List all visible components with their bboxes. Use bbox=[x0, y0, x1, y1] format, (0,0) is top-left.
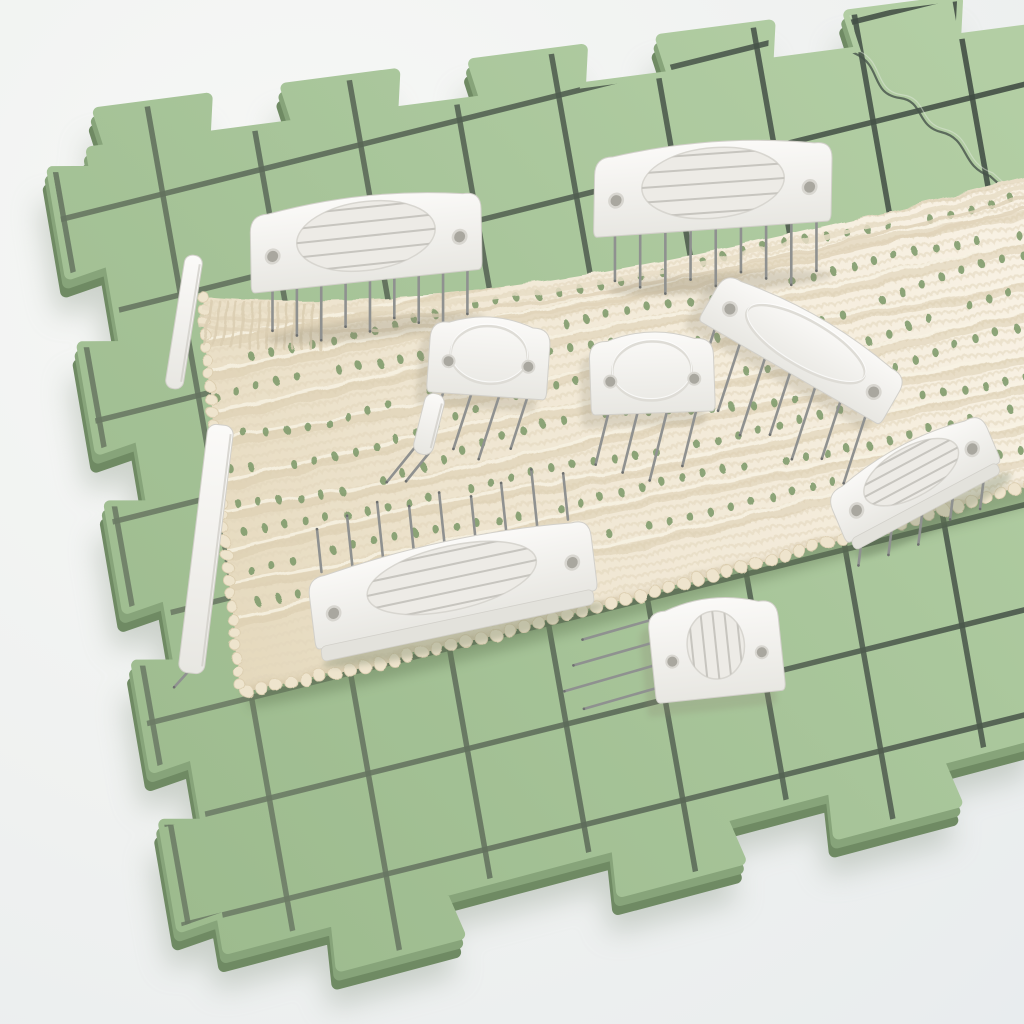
bound-off-bump bbox=[721, 565, 733, 577]
selvedge-bump bbox=[207, 407, 218, 418]
bound-off-bump bbox=[822, 536, 834, 548]
bound-off-bump bbox=[255, 682, 267, 694]
selvedge-bump bbox=[224, 575, 235, 586]
bound-off-bump bbox=[764, 553, 776, 565]
bound-off-bump bbox=[329, 667, 341, 679]
bound-off-bump bbox=[735, 561, 747, 573]
selvedge-bump bbox=[202, 355, 213, 366]
bound-off-bump bbox=[619, 593, 631, 605]
selvedge-bump bbox=[220, 537, 231, 548]
bound-off-bump bbox=[605, 597, 617, 609]
scene-svg bbox=[0, 0, 1024, 1024]
bound-off-bump bbox=[749, 557, 761, 569]
selvedge-bump bbox=[223, 562, 234, 573]
bound-off-bump bbox=[648, 585, 660, 597]
bound-off-bump bbox=[285, 676, 297, 688]
selvedge-bump bbox=[221, 549, 232, 560]
blocker-body-group bbox=[589, 330, 716, 415]
selvedge-bump bbox=[225, 588, 236, 599]
bound-off-bump bbox=[677, 577, 689, 589]
selvedge-bump bbox=[230, 640, 241, 651]
bound-off-bump bbox=[663, 581, 675, 593]
bound-off-bump bbox=[793, 544, 805, 556]
bound-off-bump bbox=[692, 573, 704, 585]
bound-off-bump bbox=[299, 673, 311, 685]
bound-off-bump bbox=[807, 540, 819, 552]
selvedge-bump bbox=[228, 614, 239, 625]
selvedge-bump bbox=[234, 679, 245, 690]
bound-off-bump bbox=[634, 589, 646, 601]
selvedge-bump bbox=[205, 381, 216, 392]
bound-off-bump bbox=[1009, 484, 1021, 496]
photo bbox=[0, 0, 1024, 1024]
selvedge-bump bbox=[206, 394, 217, 405]
selvedge-bump bbox=[232, 653, 243, 664]
bound-off-bump bbox=[270, 679, 282, 691]
bound-off-bump bbox=[314, 670, 326, 682]
selvedge-bump bbox=[227, 601, 238, 612]
selvedge-bump bbox=[201, 342, 212, 353]
selvedge-bump bbox=[203, 368, 214, 379]
bound-off-bump bbox=[778, 549, 790, 561]
selvedge-bump bbox=[233, 666, 244, 677]
bound-off-bump bbox=[706, 569, 718, 581]
photo-page: { "scene": { "description": "Cream lace … bbox=[0, 0, 1024, 1024]
selvedge-bump bbox=[229, 627, 240, 638]
